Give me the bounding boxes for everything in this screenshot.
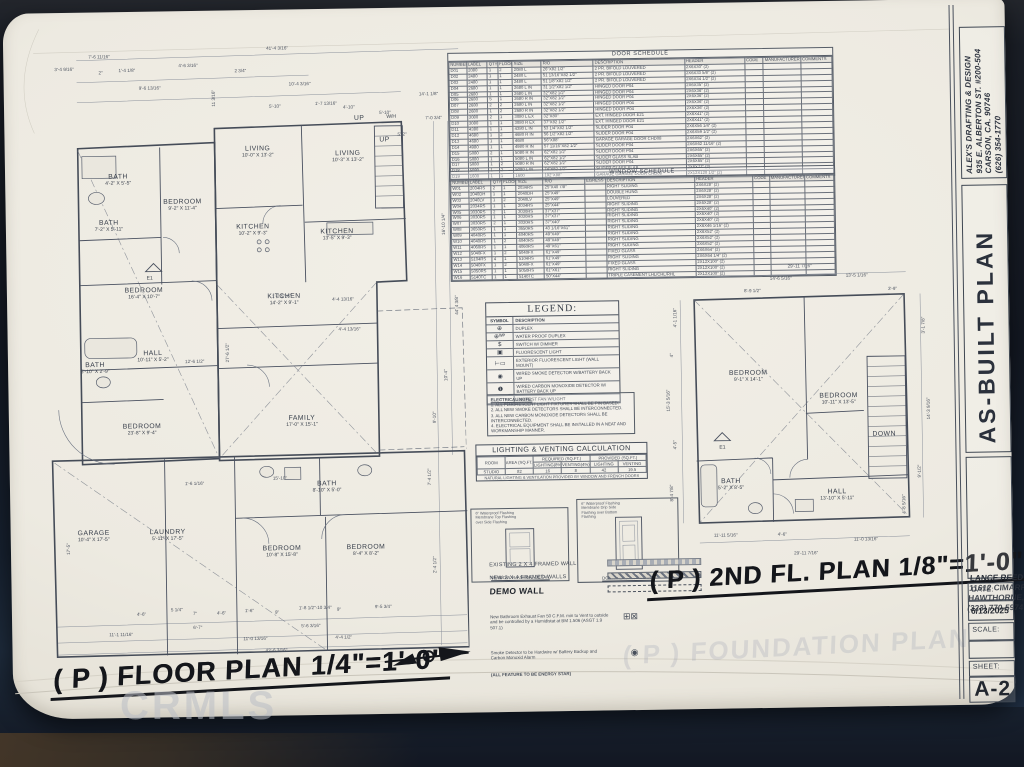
scale-label-box: SCALE: bbox=[968, 622, 1014, 641]
legend-symbol-icon: ⊕ bbox=[486, 325, 513, 332]
dimension-label: 9" bbox=[275, 610, 279, 615]
legend-symbol-icon: ◉ bbox=[487, 370, 514, 382]
exhaust-fan-note: New Bathroom Exhaust Fan 50 C.F.M. min t… bbox=[490, 612, 610, 630]
dimension-label: 8'-4 7/8" bbox=[669, 485, 674, 502]
elevation-marker-e1: E1 bbox=[147, 276, 153, 282]
legend: LEGEND: SYMBOL DESCRIPTION ⊕DUPLEX⊕ᵂᴾWAT… bbox=[485, 300, 621, 405]
room-label: BATH5'-10" X 2'-9" bbox=[81, 362, 110, 375]
dimension-label: 4'-6" bbox=[778, 532, 787, 537]
dimension-label: 6'-7" bbox=[193, 625, 202, 630]
dimension-label: 1'-6 1/16" bbox=[185, 481, 204, 486]
blueprint-sheet: E1 W/H BATH4'-2" X 5'-5"BATH7'-2" X 5'-1… bbox=[3, 0, 1016, 720]
dimension-label: 7'-6 11/16" bbox=[88, 54, 110, 59]
date-value: 6/13/2025 bbox=[971, 605, 1009, 616]
dimension-label: 2 3/4" bbox=[234, 68, 246, 73]
table-surface-streak bbox=[0, 733, 420, 767]
calc-h-room: ROOM bbox=[477, 457, 505, 469]
dimension-label: 4'-8 5/16" bbox=[901, 494, 906, 513]
dimension-label: 14'-6 5/16" bbox=[770, 276, 792, 281]
dimension-label: 3'-9" bbox=[888, 286, 897, 291]
room-label: LIVING10'-3" X 13'-2" bbox=[332, 150, 364, 163]
dimension-label: 9'-10" bbox=[432, 411, 437, 423]
dimension-label: 1'-8 1/2"-10 3/4" bbox=[299, 605, 332, 611]
firm-phone: (626) 354-1770 bbox=[992, 48, 1003, 173]
dimension-label: 4'-4 13/16" bbox=[338, 326, 360, 331]
dimension-label: 29'-11 7/16" bbox=[794, 550, 818, 555]
detail-annotation: 6" Waterproof Flashing Membrane Drip Sid… bbox=[581, 501, 627, 519]
room-label: KITCHEN10'-2" X 9'-3" bbox=[236, 223, 270, 237]
dimension-label: 27'-6 1/2" bbox=[225, 343, 230, 362]
calc-h-area: AREA (SQ.FT.) bbox=[505, 456, 533, 468]
dimension-label: 4'-6" bbox=[217, 610, 226, 615]
room-label: UP bbox=[379, 136, 390, 143]
north-arrow-icon bbox=[382, 645, 472, 672]
dimension-label: 9'-5 3/4" bbox=[375, 604, 392, 609]
firm-info: ALEX'S DRAFTING & DESIGN 935 E. ALBERTON… bbox=[963, 48, 1003, 174]
titleblock-client-box: LANCE REED 11612 CIMARRON AVE. HAWTHORNE… bbox=[966, 456, 1014, 579]
sheet-label: SHEET: bbox=[973, 663, 1000, 670]
dimension-label: 4'-6" bbox=[137, 612, 146, 617]
dimension-label: 11'-1 11/16" bbox=[109, 632, 133, 637]
scale-label: SCALE: bbox=[972, 626, 999, 633]
dimension-label: 11'-11 5/16" bbox=[714, 532, 738, 537]
dimension-label: 10'-4" bbox=[443, 369, 448, 381]
dimension-label: 44'-4 3/8" bbox=[454, 295, 459, 314]
room-label: BATH8'-10" X 5'-0" bbox=[312, 480, 341, 493]
dimension-label: 4'-4 13/16" bbox=[332, 296, 354, 301]
room-label: BEDROOM23'-8" X 9'-4" bbox=[123, 423, 162, 437]
fan-symbol-icon: ⊞⊠ bbox=[623, 614, 638, 620]
dimension-label: 17'-5" bbox=[66, 543, 71, 555]
dimension-label: 41'-4 3/16" bbox=[266, 45, 288, 50]
sheet-number-box: A-2 bbox=[969, 676, 1015, 703]
room-label: BEDROOM10'-8" X 15'-8" bbox=[263, 545, 302, 559]
photo-of-blueprint: { "watermark": "CRMLS", "titleblock": { … bbox=[0, 0, 1024, 767]
dimension-label: 11'-0 13/16" bbox=[243, 636, 267, 641]
room-label: BATH4'-2" X 5'-5" bbox=[105, 173, 131, 186]
room-label: GARAGE10'-4" X 17'-5" bbox=[78, 530, 110, 544]
column-header: NUMBER bbox=[451, 180, 469, 186]
titleblock-firm-box: ALEX'S DRAFTING & DESIGN 935 E. ALBERTON… bbox=[959, 26, 1007, 179]
dimension-label: 4'-4 1/2" bbox=[335, 634, 352, 639]
dimension-label: 4" bbox=[669, 353, 674, 357]
dimension-label: 8'-9 1/2" bbox=[744, 288, 761, 293]
dimension-label: 5'-10" bbox=[379, 110, 391, 115]
dimension-label: 1'-2 5/16" bbox=[272, 293, 291, 298]
electrical-note: ELECTRICAL NOTE: 1. ALL FLUORESCENT LIGH… bbox=[487, 392, 636, 437]
room-label: DOWN bbox=[872, 430, 896, 437]
dimension-label: 15'-3 5/16" bbox=[666, 390, 671, 412]
date-value-box: 6/13/2025 bbox=[968, 600, 1014, 621]
dimension-label: 2" bbox=[98, 70, 102, 75]
dimension-label: 4'-6 3/16" bbox=[178, 63, 197, 68]
room-label: LAUNDRY5'-11" X 17'-5" bbox=[150, 529, 186, 543]
dimension-label: 11 3/16" bbox=[211, 90, 216, 107]
room-label: BEDROOM8'-4" X 8'-2" bbox=[347, 543, 386, 557]
dimension-label: 5'-6 3/16" bbox=[301, 623, 320, 628]
door-schedule: DOOR SCHEDULE NUMBERLABELQTYFLOORSIZER/O… bbox=[447, 47, 835, 182]
room-label: FAMILY17'-0" X 15'-1" bbox=[286, 415, 318, 428]
dimension-label: 5 1/4" bbox=[171, 607, 183, 612]
column-header: QTY bbox=[487, 62, 497, 68]
note-item: 4. ELECTRICAL EQUIPMENT SHALL BE INSTALL… bbox=[491, 421, 631, 434]
bleed-through-text: ( P ) FOUNDATION PLAN bbox=[622, 623, 970, 672]
electrical-note-items: 1. ALL FLUORESCENT LIGHT FIXTURES SHALL … bbox=[491, 400, 631, 433]
dimension-label: 7'-4 1/2" bbox=[427, 468, 432, 485]
detail-annotation: 6" Waterproof Flashing Membrane Top Flas… bbox=[475, 511, 521, 525]
dimension-label: 7" bbox=[193, 611, 197, 616]
dimension-label: 9" bbox=[337, 607, 341, 612]
crmls-watermark: CRMLS bbox=[120, 684, 277, 729]
dimension-label: 3'-1 7/8" bbox=[920, 317, 925, 334]
main-floor-plan: E1 W/H BATH4'-2" X 5'-5"BATH7'-2" X 5'-1… bbox=[28, 25, 470, 660]
dimension-label: 1'-4 1/8" bbox=[118, 68, 135, 73]
main-floor-plan-drawing: E1 W/H bbox=[28, 25, 470, 660]
room-label: BEDROOM9'-1" X 14'-1" bbox=[729, 369, 768, 383]
second-floor-plan: E1 BEDROOM9'-1" X 14'-1"BEDROOM10'-11" X… bbox=[652, 261, 949, 566]
sheet-number: A-2 bbox=[974, 677, 1011, 702]
sheet-label-box: SHEET: bbox=[969, 660, 1015, 677]
room-label: HALL10'-11" X 5'-2" bbox=[137, 350, 168, 363]
dimension-label: 2'-4 1/2" bbox=[432, 556, 437, 573]
room-label: BATH7'-2" X 5'-11" bbox=[95, 220, 124, 233]
dimension-label: 14'-1 1/8" bbox=[419, 91, 438, 96]
legend-symbol-icon: ⊕ᵂᴾ bbox=[487, 333, 514, 340]
dimension-label: 7'-0 3/4" bbox=[425, 115, 442, 120]
dimension-label: 4'-10" bbox=[343, 104, 355, 109]
dimension-label: 4'-5" bbox=[672, 440, 677, 449]
energy-star-note: (ALL FEATURE TO BE ENERGY STAR) bbox=[491, 670, 611, 677]
elevation-marker-e1: E1 bbox=[719, 445, 725, 451]
dimension-label: 3'-4 9/16" bbox=[54, 67, 73, 72]
second-floor-plan-drawing: E1 bbox=[652, 261, 949, 566]
room-label: BEDROOM10'-11" X 13'-5" bbox=[819, 392, 858, 406]
column-header: EGRESS bbox=[585, 178, 606, 184]
column-header: NUMBER bbox=[449, 62, 467, 68]
column-header: QTY bbox=[491, 180, 501, 186]
door-schedule-body: D012080122080 L26"X82 1/2"2 PR. BIFOLD L… bbox=[449, 62, 834, 180]
legend-symbol-icon: ⊢▭ bbox=[487, 357, 514, 369]
scale-value-box bbox=[968, 640, 1014, 659]
legend-symbol-icon: $ bbox=[487, 341, 514, 348]
date-label-box: DATE: bbox=[968, 582, 1014, 601]
legend-symbol-icon: ▣ bbox=[487, 349, 514, 356]
dimension-label: 9'-1/2" bbox=[917, 465, 922, 478]
dimension-label: 15'-10" bbox=[273, 476, 287, 481]
room-label: BEDROOM9'-2" X 11'-4" bbox=[163, 198, 202, 212]
plan-title: AS-BUILT PLAN bbox=[971, 230, 1001, 444]
dimension-label: 1'-7 13/16" bbox=[315, 101, 337, 106]
dimension-label: 11'-0 13/16" bbox=[854, 536, 878, 541]
room-label: KITCHEN13'-5" X 9'-3" bbox=[320, 228, 354, 242]
date-label: DATE: bbox=[972, 586, 994, 593]
dimension-label: 29'-11 7/16" bbox=[788, 263, 812, 268]
dimension-label: 5'-2" bbox=[397, 132, 406, 137]
dimension-label: 4'-1 1/16" bbox=[672, 308, 677, 327]
dimension-label: 1'-6" bbox=[245, 608, 254, 613]
room-label: LIVING10'-0" X 13'-2" bbox=[242, 145, 274, 158]
column-header: COMMENTS bbox=[804, 174, 833, 180]
column-header: FLOOR bbox=[502, 179, 517, 185]
smoke-detector-note: Smoke Detector to be Hardwire w/ Battery… bbox=[491, 648, 611, 661]
dimension-label: 13'-5 1/16" bbox=[846, 272, 868, 277]
dimension-label: 16'-10 1/4" bbox=[441, 213, 446, 235]
room-label: HALL13'-10" X 5'-11" bbox=[820, 488, 854, 502]
dimension-label: 14'-3 9/16" bbox=[926, 397, 931, 419]
dimension-label: 5'-10" bbox=[269, 104, 281, 109]
dimension-label: 9'-6 13/16" bbox=[139, 85, 161, 90]
room-label: BEDROOM16'-4" X 10'-7" bbox=[125, 287, 164, 301]
column-header: FLOOR bbox=[498, 61, 513, 67]
dimension-label: 10'-4 3/16" bbox=[289, 81, 311, 86]
room-label: BATH5'-2" X 8'-5" bbox=[718, 478, 744, 491]
column-header: MANUFACTURER bbox=[769, 175, 804, 181]
room-label: UP bbox=[354, 115, 365, 122]
lighting-venting-calc: LIGHTING & VENTING CALCULATION ROOM AREA… bbox=[475, 442, 648, 482]
dimension-label: 12'-6 1/2" bbox=[185, 359, 204, 364]
titleblock-plan-title-box: AS-BUILT PLAN bbox=[961, 184, 1011, 453]
